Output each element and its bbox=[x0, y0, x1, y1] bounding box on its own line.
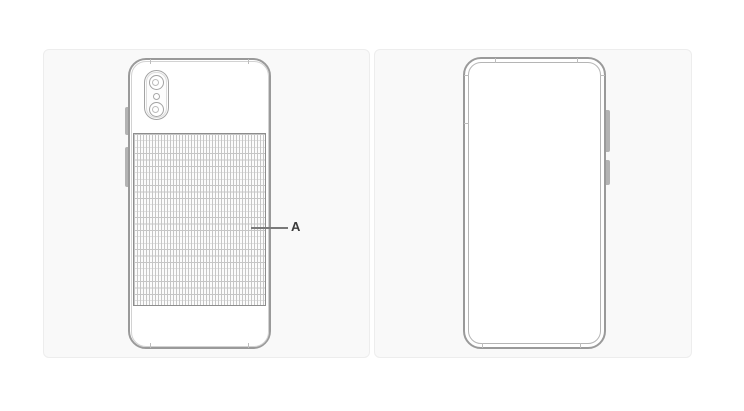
rear-panel-hatched-region bbox=[133, 133, 266, 306]
rear-camera-module bbox=[144, 70, 169, 120]
front-view-volume-button bbox=[606, 110, 610, 152]
antenna-tick bbox=[464, 75, 469, 76]
antenna-tick bbox=[464, 123, 469, 124]
camera-lens-bottom bbox=[149, 102, 164, 117]
camera-flash bbox=[153, 93, 160, 100]
figure-label-a: A bbox=[291, 219, 300, 234]
antenna-tick bbox=[577, 58, 578, 63]
antenna-tick bbox=[150, 343, 151, 348]
figure-panel-back-view: A bbox=[43, 49, 370, 358]
phone-front-outline bbox=[463, 57, 606, 349]
antenna-tick bbox=[248, 343, 249, 348]
phone-back-outline bbox=[128, 58, 271, 349]
antenna-tick bbox=[580, 343, 581, 348]
antenna-tick bbox=[248, 59, 249, 64]
figure-panel-front-view bbox=[374, 49, 692, 358]
camera-lens-top-inner bbox=[152, 79, 159, 86]
label-a-leader-line bbox=[251, 227, 288, 229]
back-view-side-button-upper bbox=[125, 107, 129, 135]
antenna-tick bbox=[600, 75, 605, 76]
antenna-tick bbox=[495, 58, 496, 63]
camera-lens-top bbox=[149, 75, 164, 90]
back-view-side-button-lower bbox=[125, 147, 129, 187]
front-view-power-button bbox=[606, 160, 610, 185]
antenna-tick bbox=[482, 343, 483, 348]
front-screen-outline bbox=[468, 62, 601, 344]
camera-lens-bottom-inner bbox=[152, 106, 159, 113]
antenna-tick bbox=[150, 59, 151, 64]
